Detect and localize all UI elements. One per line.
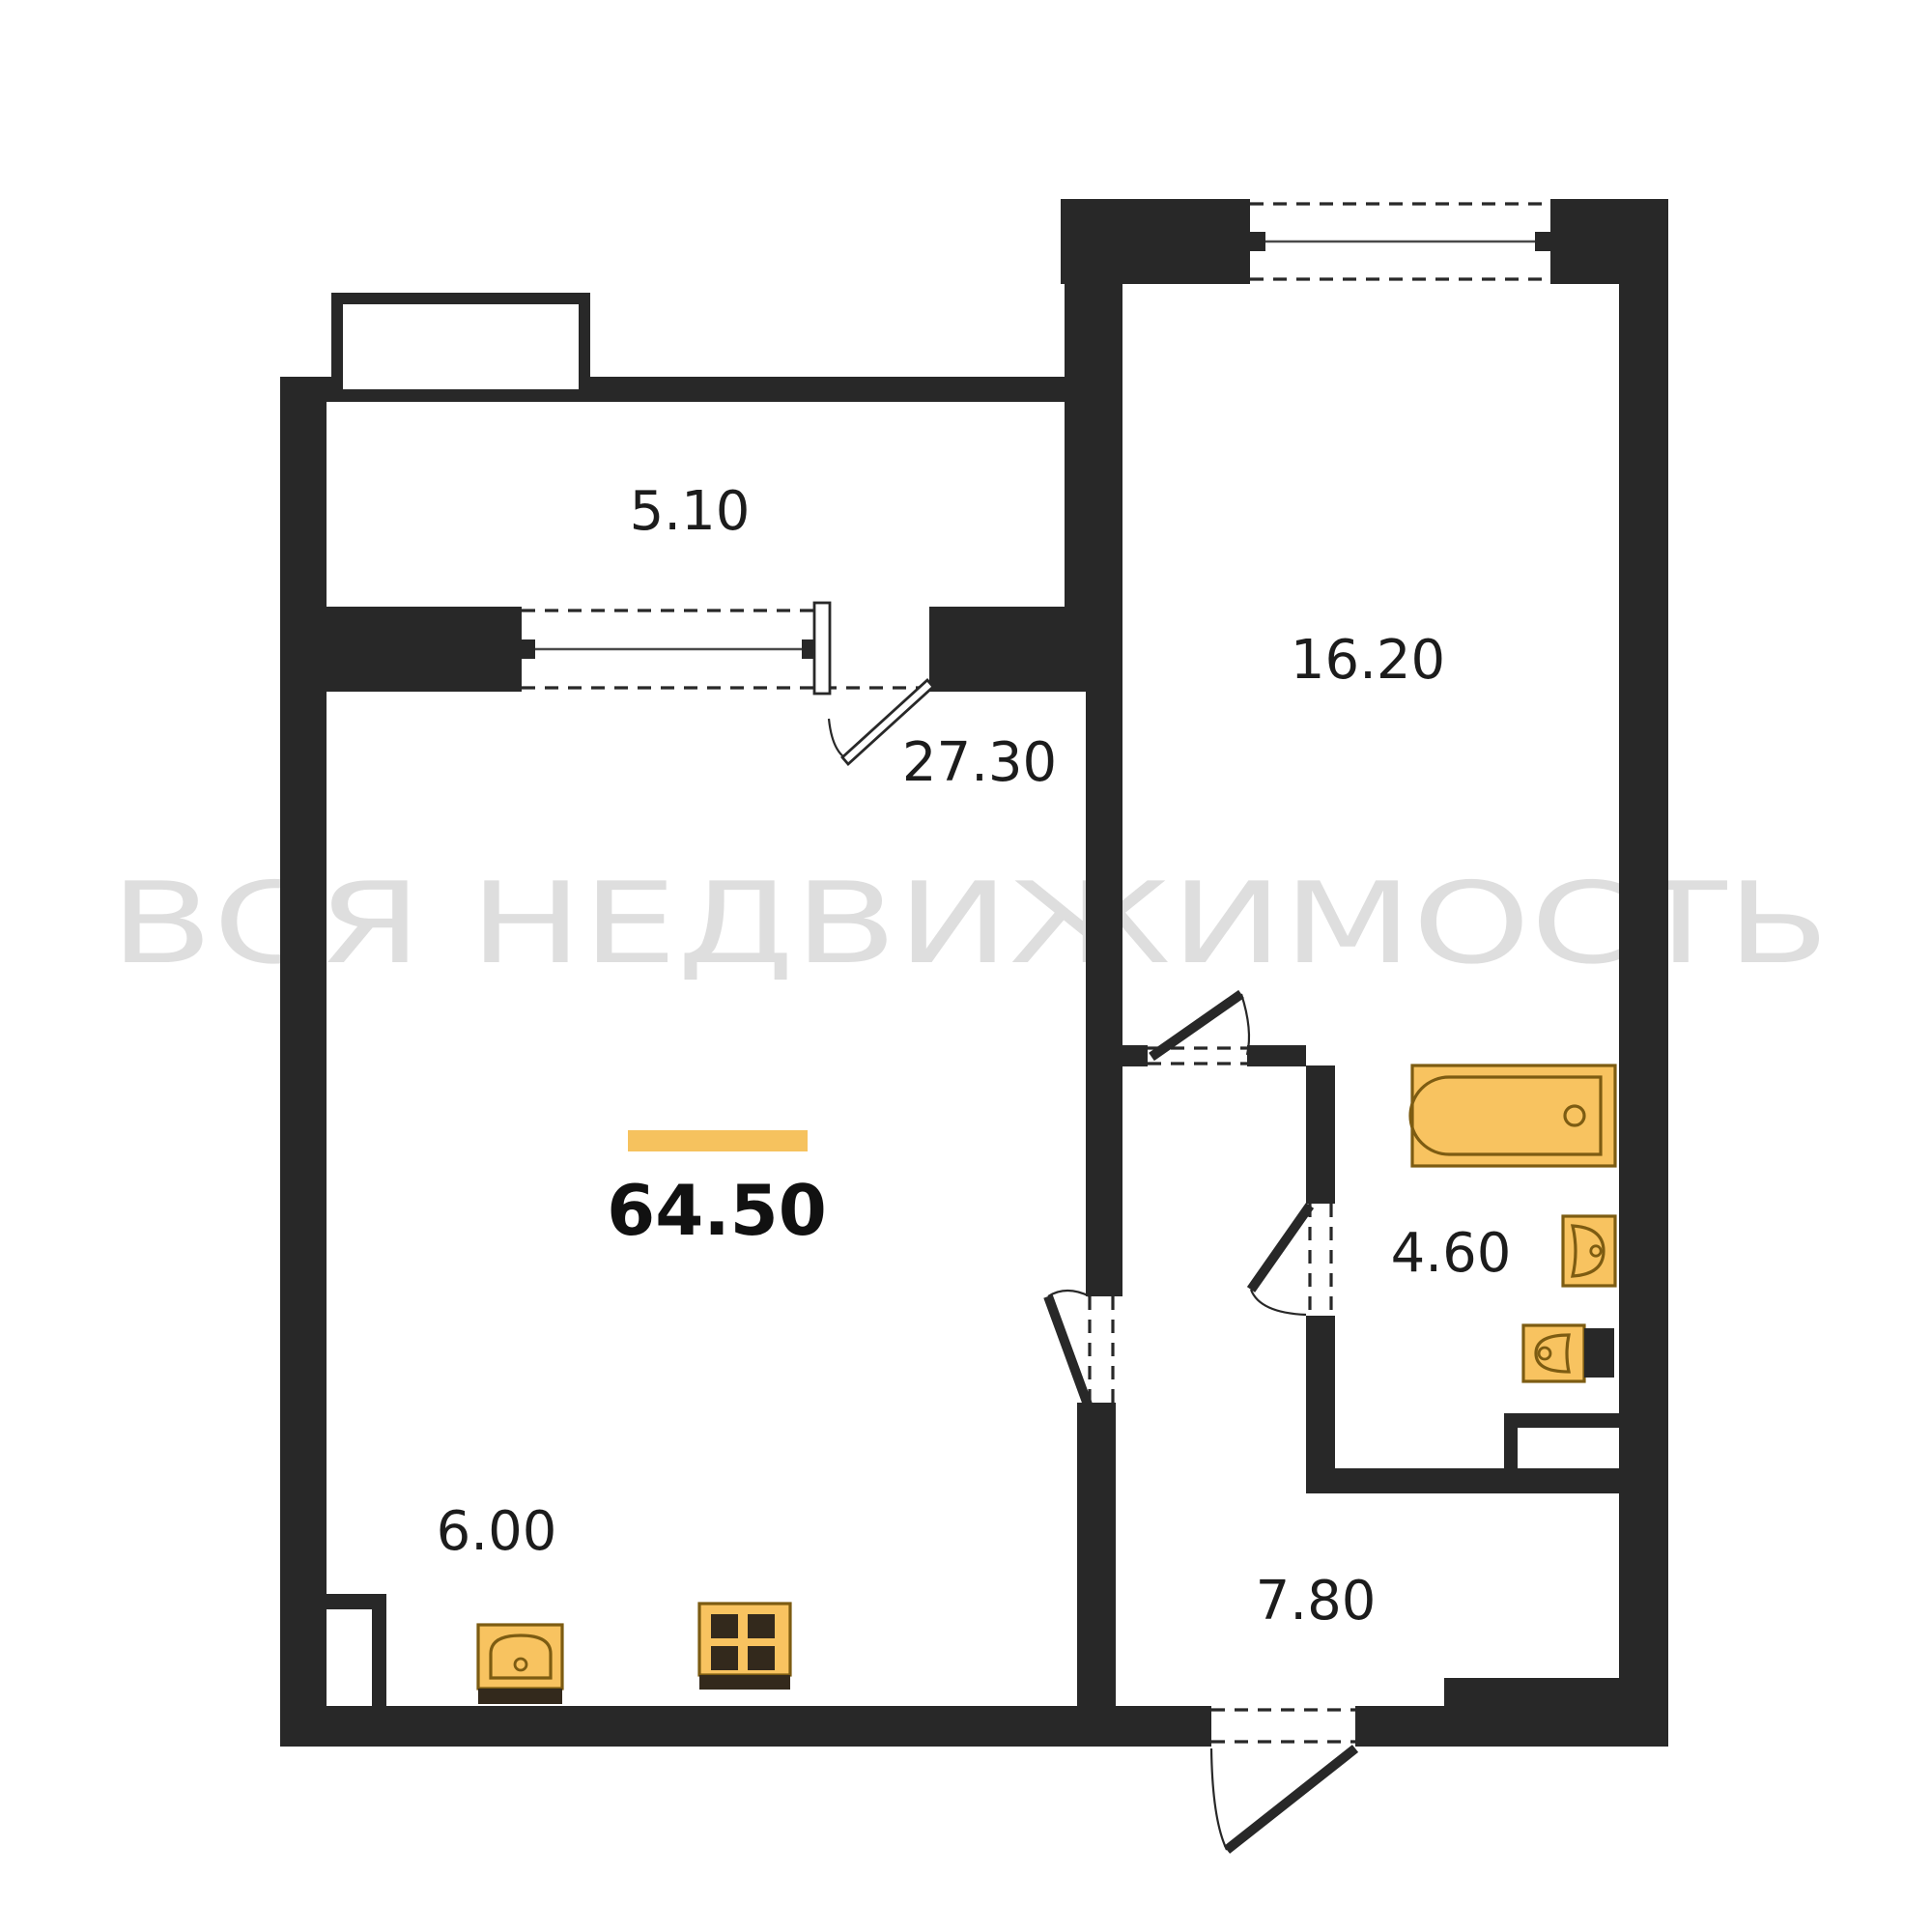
balcony-area-label: 5.10	[630, 480, 751, 543]
duct-niche-side-wall	[1504, 1428, 1518, 1468]
stove-icon	[699, 1604, 790, 1690]
outer-wall-bottom-left	[280, 1706, 1116, 1747]
outer-wall-left	[280, 377, 327, 1747]
hallway-area-label: 7.80	[1256, 1570, 1377, 1633]
bathtub-icon	[1410, 1065, 1615, 1166]
bathroom-bottom-wall	[1306, 1468, 1619, 1493]
toilet-icon	[1523, 1325, 1614, 1381]
bedroom-door-wall-right	[1247, 1045, 1306, 1066]
bathroom-wall-lower	[1306, 1316, 1335, 1472]
bathroom-area-label: 4.60	[1391, 1222, 1512, 1285]
total-area-label: 64.50	[607, 1170, 827, 1251]
floor-plan-drawing: ВСЯ НЕДВИЖИМОСТЬ	[0, 0, 1932, 1932]
hallway-bottom-step-block	[1444, 1678, 1619, 1747]
corridor-partition-upper	[1086, 1065, 1122, 1296]
balcony-window-wall-left	[327, 607, 522, 692]
kitchen-sink-icon	[478, 1625, 562, 1704]
floor-plan: ВСЯ НЕДВИЖИМОСТЬ	[0, 0, 1932, 1932]
living-room-area-label: 27.30	[902, 731, 1057, 794]
outer-wall-right	[1619, 199, 1668, 1747]
kitchen-niche-side-wall	[372, 1594, 386, 1706]
hallway-bottom-wall-right	[1355, 1706, 1449, 1747]
wash-basin-icon	[1563, 1216, 1615, 1286]
kitchen-area-label: 6.00	[437, 1500, 557, 1563]
duct-niche-top-wall	[1504, 1413, 1619, 1428]
outer-wall-top-right-left-seg	[1061, 199, 1250, 284]
bedroom-area-label: 16.20	[1291, 629, 1445, 692]
balcony-parapet	[337, 298, 584, 395]
total-area-accent-bar	[628, 1130, 808, 1151]
bedroom-door-wall-left	[1122, 1045, 1148, 1066]
bathroom-wall-upper	[1306, 1065, 1335, 1204]
bedroom-partition-upper	[1065, 284, 1122, 628]
watermark-text: ВСЯ НЕДВИЖИМОСТЬ	[110, 859, 1830, 989]
hallway-bottom-wall-left	[1116, 1706, 1211, 1747]
total-area-block: 64.50	[607, 1130, 827, 1251]
corridor-partition-lower	[1077, 1403, 1116, 1747]
bedroom-partition-mid	[1086, 628, 1122, 1066]
